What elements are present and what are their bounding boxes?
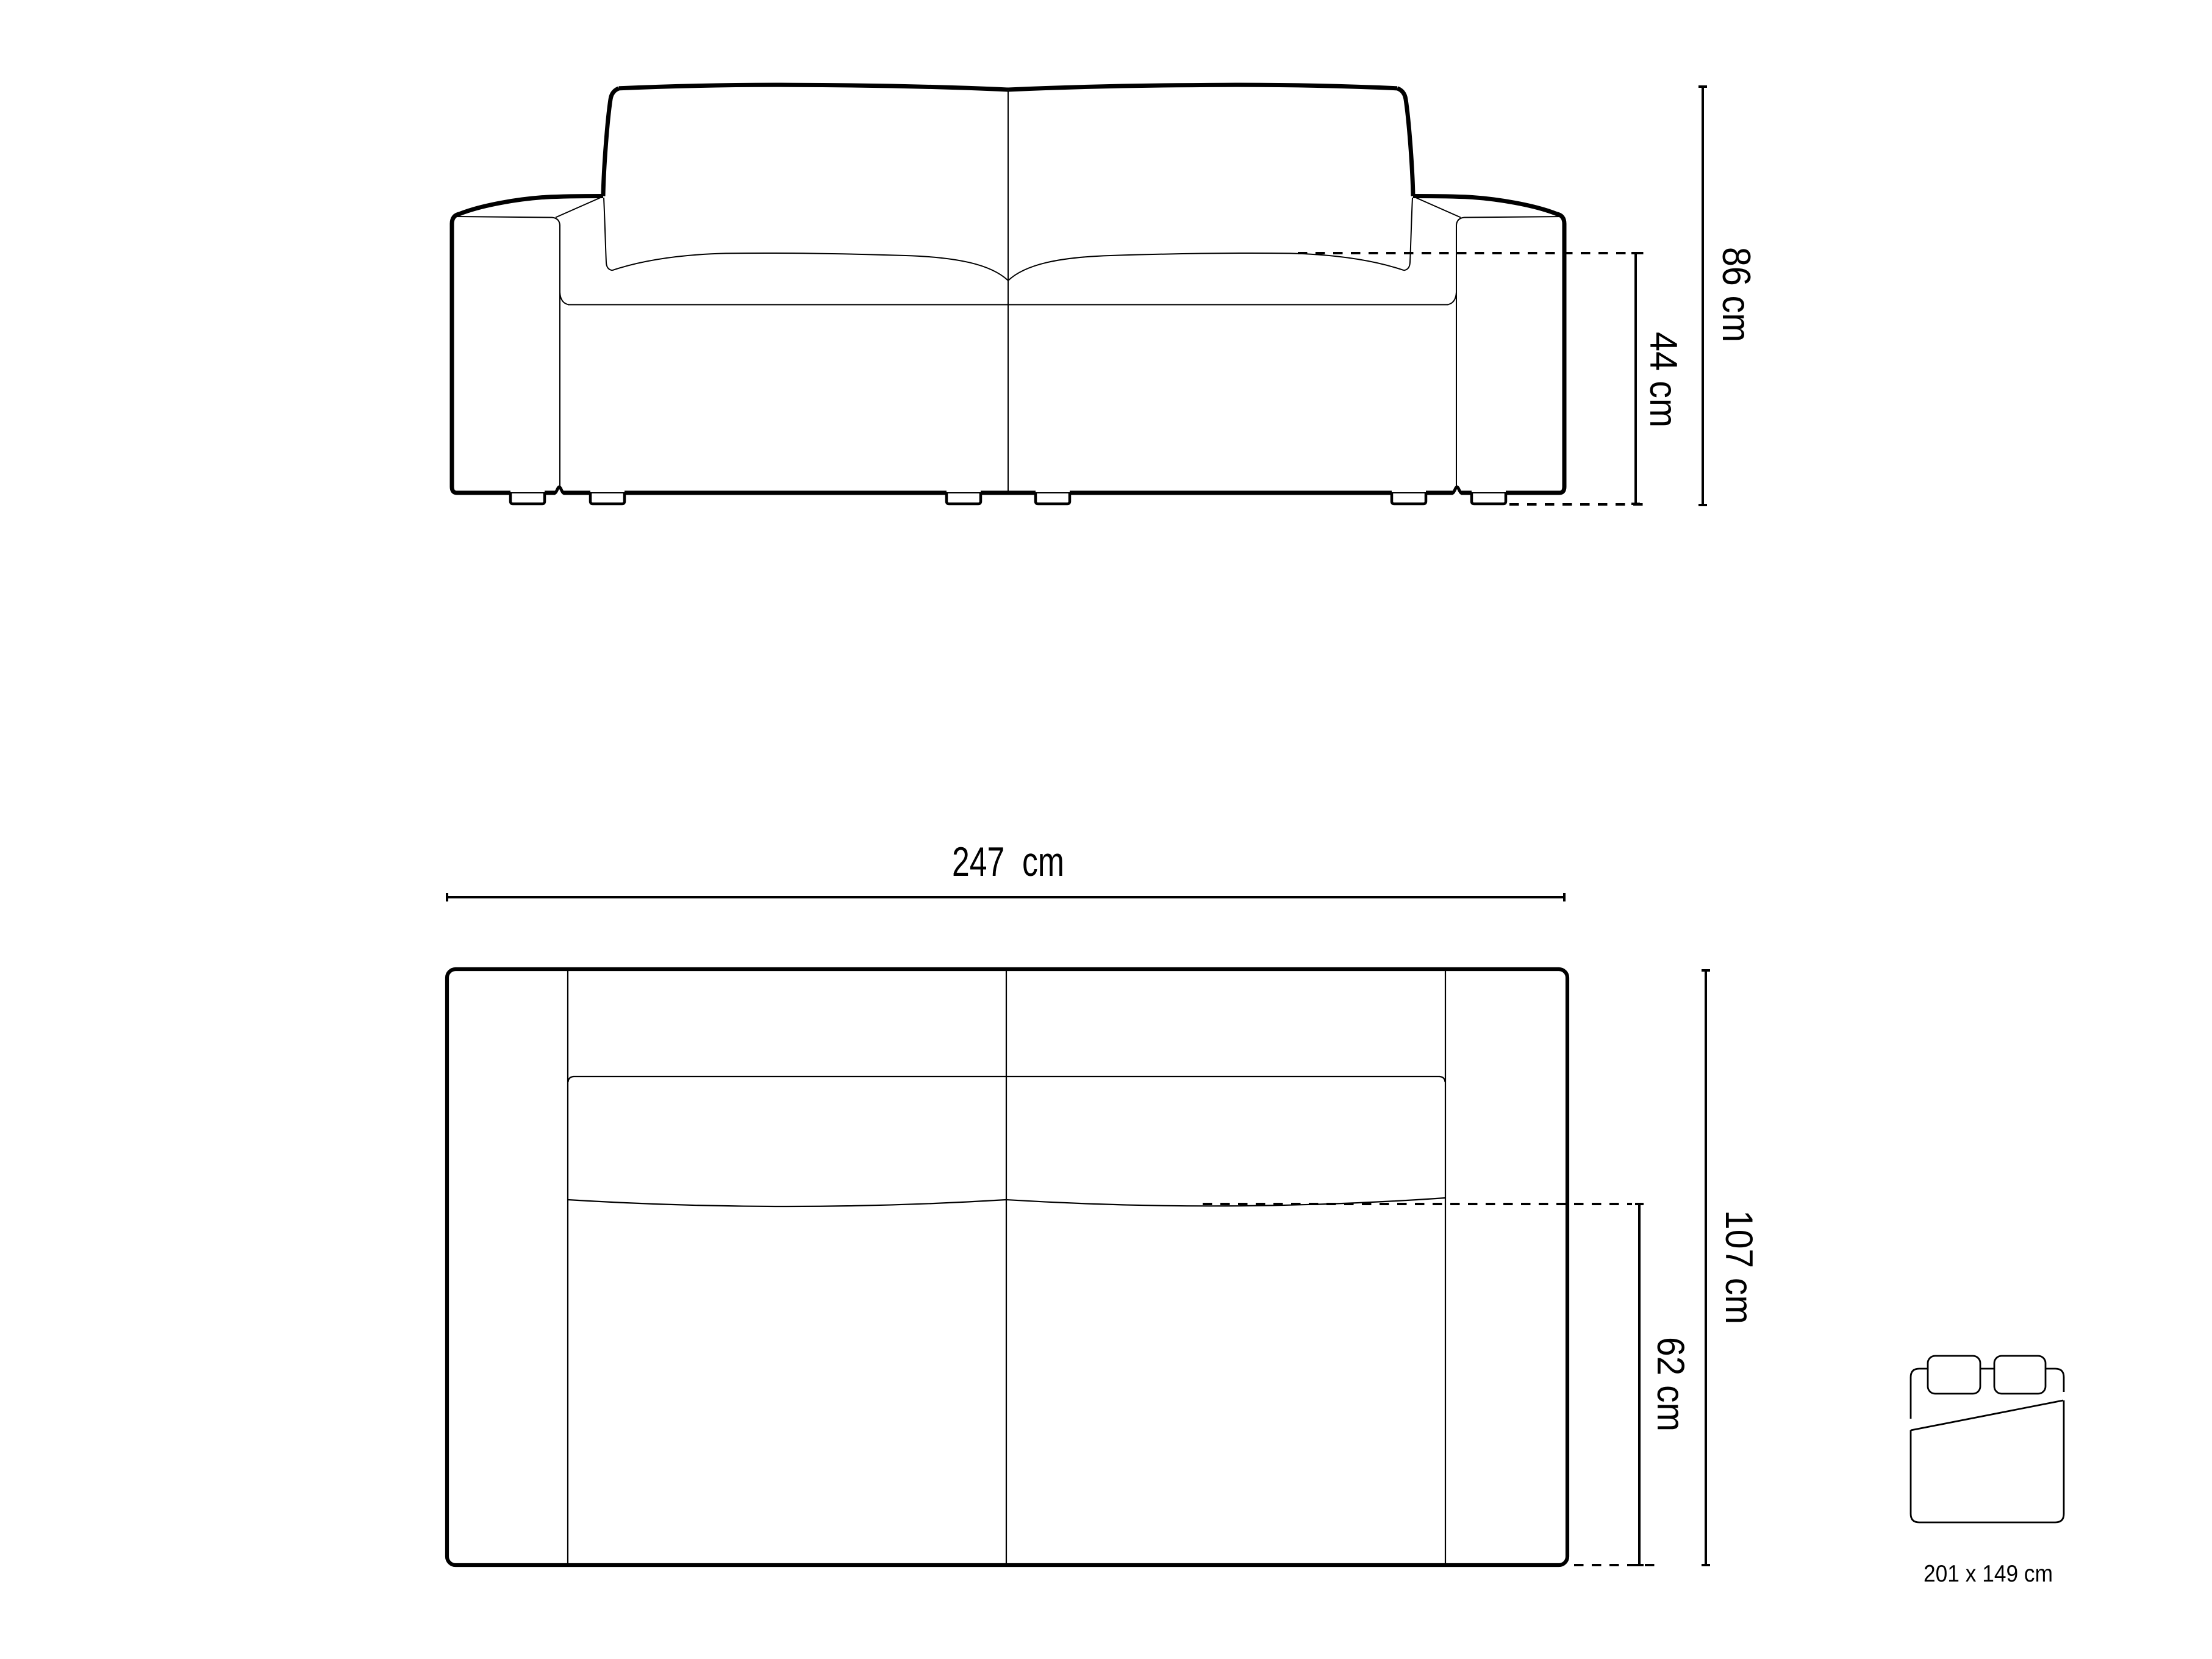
svg-text:201 x 149 cm: 201 x 149 cm xyxy=(1924,1561,2053,1587)
svg-text:247 cm: 247 cm xyxy=(952,839,1064,885)
svg-text:62 cm: 62 cm xyxy=(1649,1337,1692,1431)
svg-text:107 cm: 107 cm xyxy=(1717,1210,1760,1324)
svg-text:44 cm: 44 cm xyxy=(1642,332,1684,428)
svg-text:86 cm: 86 cm xyxy=(1714,247,1759,342)
